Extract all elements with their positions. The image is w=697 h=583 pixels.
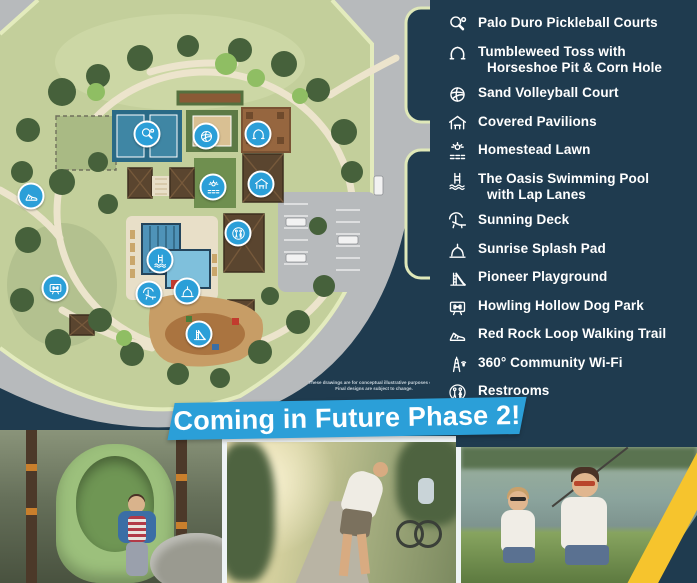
legend-item: Howling Hollow Dog Park xyxy=(447,298,691,318)
legend-item: Palo Duro Pickleball Courts xyxy=(447,15,691,35)
site-map xyxy=(0,0,445,432)
restrooms-icon xyxy=(230,225,246,241)
girl-head xyxy=(508,491,528,511)
walking-trail-marker xyxy=(18,183,45,210)
horseshoe-icon xyxy=(250,126,266,142)
boy-sunglasses xyxy=(574,481,595,486)
legend-item-label: Covered Pavilions xyxy=(478,114,597,131)
bicycle xyxy=(396,502,442,548)
sunning-deck-icon xyxy=(447,211,468,232)
pavilion-marker xyxy=(248,171,275,198)
horseshoe-marker xyxy=(245,121,272,148)
legend-item-label: Palo Duro Pickleball Courts xyxy=(478,15,658,32)
post-clamp xyxy=(26,464,37,471)
pickleball-icon xyxy=(447,14,468,35)
legend-item-label: The Oasis Swimming Poolwith Lap Lanes xyxy=(478,171,649,204)
legend-item-label: Pioneer Playground xyxy=(478,269,607,286)
pool-icon xyxy=(152,252,168,268)
legend-item: 360° Community Wi-Fi xyxy=(447,355,691,375)
wifi-icon xyxy=(447,354,468,375)
legend-item: Tumbleweed Toss withHorseshoe Pit & Corn… xyxy=(447,44,691,77)
post-clamp xyxy=(176,474,187,481)
photo-playground-slide xyxy=(0,430,222,583)
park-flyer: These drawings are for conceptual illust… xyxy=(0,0,697,583)
legend-item-label: Red Rock Loop Walking Trail xyxy=(478,326,666,343)
volleyball-icon xyxy=(447,84,468,105)
sunning-deck-marker xyxy=(136,281,163,308)
legend-item-label: Sunning Deck xyxy=(478,212,569,229)
photo-bike-path xyxy=(222,436,456,583)
lawn-icon xyxy=(447,141,468,162)
playground-marker xyxy=(186,321,213,348)
pickleball-icon xyxy=(139,126,155,142)
legend-item: Pioneer Playground xyxy=(447,269,691,289)
sunning-deck-icon xyxy=(141,286,157,302)
dog-park-marker xyxy=(42,275,69,302)
legend-item: Covered Pavilions xyxy=(447,114,691,134)
legend-item: Red Rock Loop Walking Trail xyxy=(447,326,691,346)
legend-item-label: Sand Volleyball Court xyxy=(478,85,619,102)
banner-text: Coming in Future Phase 2! xyxy=(171,397,524,440)
amenities-legend: Palo Duro Pickleball CourtsTumbleweed To… xyxy=(430,0,697,434)
homestead-lawn-marker xyxy=(200,174,227,201)
tree-blur xyxy=(222,442,275,582)
walking-trail-icon xyxy=(23,188,39,204)
legend-item-label: 360° Community Wi-Fi xyxy=(478,355,623,372)
bike-wheel xyxy=(414,520,442,548)
pavilion-icon xyxy=(447,113,468,134)
post-clamp xyxy=(176,522,187,529)
phase2-banner: Coming in Future Phase 2! xyxy=(171,397,524,440)
girl-sunglasses xyxy=(510,497,526,501)
legend-item-label: Tumbleweed Toss withHorseshoe Pit & Corn… xyxy=(478,44,662,77)
site-plan-illustration xyxy=(0,0,445,432)
legend-item-label: Howling Hollow Dog Park xyxy=(478,298,644,315)
far-treeline xyxy=(461,447,697,469)
playground-post xyxy=(26,430,37,583)
splash-pad-marker xyxy=(174,278,201,305)
girl-shorts xyxy=(503,547,535,563)
horseshoe-icon xyxy=(447,43,468,64)
legend-item: Sunning Deck xyxy=(447,212,691,232)
boy-shirt xyxy=(561,497,607,549)
legend-item-label: Sunrise Splash Pad xyxy=(478,241,606,258)
playground-icon xyxy=(191,326,207,342)
pickleball-marker xyxy=(134,121,161,148)
legend-item: The Oasis Swimming Poolwith Lap Lanes xyxy=(447,171,691,204)
pavilion-icon xyxy=(253,176,269,192)
pool-icon xyxy=(447,170,468,191)
slide-opening xyxy=(76,456,154,552)
splash-pad-icon xyxy=(447,240,468,261)
splash-pad-icon xyxy=(179,283,195,299)
pool-marker xyxy=(147,247,174,274)
girl-shirt xyxy=(501,510,535,552)
child-on-bike xyxy=(418,478,434,504)
map-disclaimer: These drawings are for conceptual illust… xyxy=(308,380,440,392)
child-legs xyxy=(126,542,148,576)
lawn-icon xyxy=(205,179,221,195)
father-head xyxy=(373,462,388,477)
boy-shorts xyxy=(565,545,609,565)
playground-icon xyxy=(447,268,468,289)
legend-item-label: Homestead Lawn xyxy=(478,142,590,159)
legend-item: Sunrise Splash Pad xyxy=(447,241,691,261)
legend-item: Sand Volleyball Court xyxy=(447,85,691,105)
legend-list: Palo Duro Pickleball CourtsTumbleweed To… xyxy=(447,15,691,403)
legend-item: Homestead Lawn xyxy=(447,142,691,162)
restrooms-marker xyxy=(225,220,252,247)
dog-park-icon xyxy=(47,280,63,296)
volleyball-marker xyxy=(193,123,220,150)
dog-park-icon xyxy=(447,297,468,318)
child-striped-shirt xyxy=(128,516,146,542)
post-clamp xyxy=(26,508,37,515)
walking-trail-icon xyxy=(447,325,468,346)
volleyball-icon xyxy=(198,128,214,144)
